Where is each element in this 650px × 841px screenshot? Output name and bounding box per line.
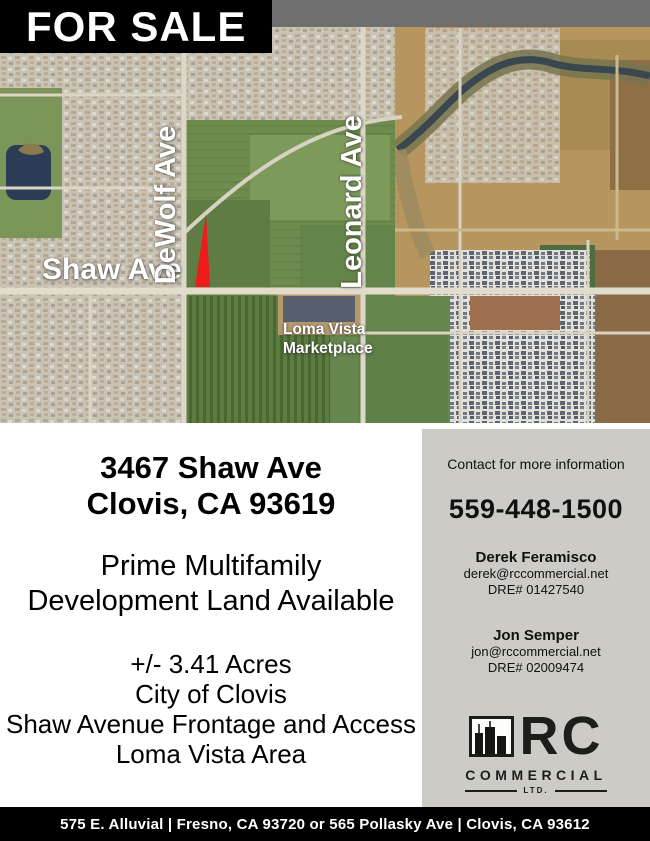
detail-city: City of Clovis (0, 679, 422, 709)
satellite-imagery (0, 0, 650, 423)
contact-panel: Contact for more information 559-448-150… (422, 429, 650, 807)
address-line1: 3467 Shaw Ave (0, 450, 422, 486)
map-label-loma-vista-marketplace: Loma Vista Marketplace (283, 320, 373, 358)
map-label-loma-line2: Marketplace (283, 339, 373, 358)
logo-rule-left (465, 790, 517, 792)
agent-dre-number: DRE# 02009474 (422, 660, 650, 676)
property-headline: Prime Multifamily Development Land Avail… (0, 549, 422, 619)
agent-card-derek: Derek Feramisco derek@rccommercial.net D… (422, 549, 650, 597)
buildings-icon (469, 716, 514, 757)
detail-acres: +/- 3.41 Acres (0, 649, 422, 679)
for-sale-banner: FOR SALE (0, 0, 272, 53)
agent-dre-number: DRE# 01427540 (422, 582, 650, 598)
detail-frontage: Shaw Avenue Frontage and Access (0, 709, 422, 739)
logo-wordmark: RC (520, 709, 604, 763)
top-gray-strip (272, 0, 650, 27)
logo-rule-right (555, 790, 607, 792)
rc-commercial-logo: RC COMMERCIAL LTD. (465, 709, 606, 795)
detail-area: Loma Vista Area (0, 739, 422, 769)
map-label-leonard-ave: Leonard Ave (337, 115, 367, 289)
property-address: 3467 Shaw Ave Clovis, CA 93619 (0, 450, 422, 522)
footer-address-text: 575 E. Alluvial | Fresno, CA 93720 or 56… (60, 816, 590, 833)
footer-address-bar: 575 E. Alluvial | Fresno, CA 93720 or 56… (0, 807, 650, 841)
map-label-loma-line1: Loma Vista (283, 320, 373, 339)
contact-phone: 559-448-1500 (422, 494, 650, 525)
logo-ltd-row: LTD. (465, 786, 606, 795)
for-sale-label: FOR SALE (26, 3, 246, 51)
for-sale-flyer: Shaw Ave DeWolf Ave Leonard Ave Loma Vis… (0, 0, 650, 841)
address-line2: Clovis, CA 93619 (0, 486, 422, 522)
aerial-map: Shaw Ave DeWolf Ave Leonard Ave Loma Vis… (0, 0, 650, 423)
agent-email: jon@rccommercial.net (422, 644, 650, 660)
headline-line1: Prime Multifamily (0, 549, 422, 584)
headline-line2: Development Land Available (0, 584, 422, 619)
property-info-column: 3467 Shaw Ave Clovis, CA 93619 Prime Mul… (0, 423, 422, 807)
map-label-dewolf-ave: DeWolf Ave (151, 126, 181, 284)
agent-name: Jon Semper (422, 627, 650, 644)
agent-card-jon: Jon Semper jon@rccommercial.net DRE# 020… (422, 627, 650, 675)
property-details: +/- 3.41 Acres City of Clovis Shaw Avenu… (0, 649, 422, 769)
agent-name: Derek Feramisco (422, 549, 650, 566)
agent-email: derek@rccommercial.net (422, 566, 650, 582)
logo-ltd-text: LTD. (523, 786, 548, 795)
logo-commercial-text: COMMERCIAL (465, 767, 606, 783)
contact-heading: Contact for more information (422, 456, 650, 472)
